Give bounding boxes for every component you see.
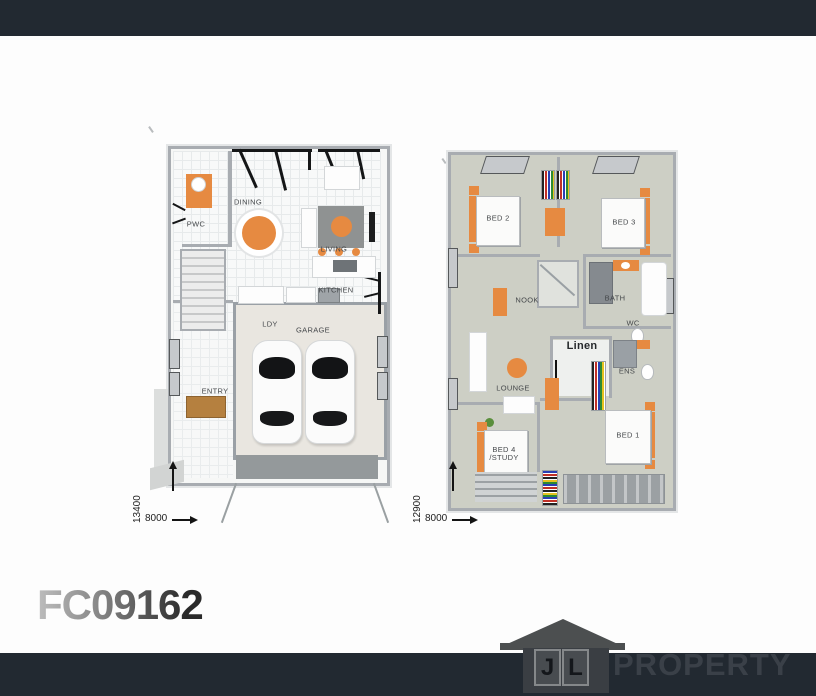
wall xyxy=(537,402,540,472)
room-label-bed3: BED 3 xyxy=(612,218,635,227)
wall xyxy=(182,244,232,247)
window xyxy=(377,336,388,368)
room-label-kitchen: KITCHEN xyxy=(318,286,353,295)
room-label-wc: WC xyxy=(626,319,639,328)
car xyxy=(305,340,355,444)
nightstand xyxy=(640,188,650,197)
cooktop xyxy=(333,260,357,272)
room-label-entry: ENTRY xyxy=(202,387,229,396)
width-dimension-first: 8000 xyxy=(425,513,447,524)
window xyxy=(448,248,458,288)
room-label-garage: GARAGE xyxy=(296,326,330,335)
roof-deck xyxy=(563,474,665,504)
bed2-headboard xyxy=(469,196,476,242)
car-windshield xyxy=(259,357,295,379)
wall xyxy=(550,336,612,339)
entry-bench xyxy=(186,396,226,418)
page: DINING PWC LIVING KITCHEN LDY GARAGE ENT… xyxy=(0,0,816,696)
laundry-bench xyxy=(238,286,284,304)
driveway-line xyxy=(373,483,389,523)
width-dimension-ground: 8000 xyxy=(145,513,167,524)
room-label-ldy: LDY xyxy=(262,320,278,329)
driveway xyxy=(236,455,378,479)
wall xyxy=(583,254,671,257)
car-rear-window xyxy=(260,411,294,426)
hall-desk xyxy=(545,208,565,236)
wardrobe-clothes xyxy=(556,170,570,200)
top-banner xyxy=(0,0,816,36)
dining-table xyxy=(242,216,276,250)
ground-floor-plan: DINING PWC LIVING KITCHEN LDY GARAGE ENT… xyxy=(166,144,394,524)
depth-arrow-ground xyxy=(169,461,177,469)
company-logo: J L PROPERTY xyxy=(500,617,816,696)
window xyxy=(448,378,458,410)
logo-letter-j: J xyxy=(534,649,561,686)
wall xyxy=(450,254,540,257)
side-path xyxy=(154,389,168,469)
car-windshield xyxy=(312,357,348,379)
room-label-living: LIVING xyxy=(321,245,347,254)
depth-dimension-first: 12900 xyxy=(412,483,423,523)
wardrobe-clothes xyxy=(541,170,555,200)
wardrobe-clothes xyxy=(542,470,558,506)
width-arrow-line-first xyxy=(452,519,470,521)
armchair xyxy=(331,216,352,237)
car xyxy=(252,340,302,444)
wall xyxy=(583,254,586,326)
room-label-bed1: BED 1 xyxy=(616,431,639,440)
stairs-down xyxy=(475,472,537,502)
room-label-pwc: PWC xyxy=(187,220,205,229)
nightstand xyxy=(469,186,479,195)
wall xyxy=(609,336,612,398)
lounge-sofa xyxy=(469,332,487,392)
dresser xyxy=(545,378,559,410)
depth-arrow-first xyxy=(449,461,457,469)
nook-desk xyxy=(493,288,507,316)
depth-arrow-line-first xyxy=(452,469,454,491)
window xyxy=(377,372,388,400)
room-label-bed2: BED 2 xyxy=(486,214,509,223)
room-label-lounge: LOUNGE xyxy=(496,384,529,393)
width-arrow-ground xyxy=(190,516,198,524)
linen-clothes xyxy=(591,361,606,411)
house-roof-icon xyxy=(505,619,620,645)
first-floor-plan: BED 2 BED 3 NOOK BATH WC Linen ENS LOUNG… xyxy=(445,150,677,528)
logo-wordmark: PROPERTY xyxy=(613,647,792,683)
lounge-table xyxy=(507,358,527,378)
stray-mark xyxy=(148,126,154,133)
window xyxy=(169,372,180,396)
room-label-nook: NOOK xyxy=(515,296,538,305)
width-arrow-first xyxy=(470,516,478,524)
lounge-ottoman xyxy=(503,396,535,414)
depth-arrow-line-ground xyxy=(172,469,174,491)
car-rear-window xyxy=(313,411,347,426)
logo-letter-l: L xyxy=(562,649,589,686)
sofa xyxy=(301,208,317,248)
bed4-label-line2: /STUDY xyxy=(489,453,518,462)
stool xyxy=(352,248,360,256)
wall xyxy=(228,151,232,246)
roof-window xyxy=(592,156,640,174)
bed4-headboard xyxy=(477,432,484,474)
ens-toilet xyxy=(641,364,654,380)
room-label-ens: ENS xyxy=(619,367,635,376)
room-label-linen: Linen xyxy=(567,340,598,352)
console xyxy=(324,166,360,190)
bath-basin xyxy=(621,262,630,269)
depth-dimension-ground: 13400 xyxy=(132,483,143,523)
laundry-tub xyxy=(286,287,316,303)
bathtub xyxy=(641,262,667,316)
stacker-door xyxy=(232,149,312,152)
room-label-dining: DINING xyxy=(234,198,262,207)
ens-shower xyxy=(613,340,637,368)
tv xyxy=(369,212,375,242)
width-arrow-line-ground xyxy=(172,519,190,521)
stair-rail xyxy=(540,264,576,296)
room-label-bed4-study: BED 4 /STUDY xyxy=(489,446,518,462)
room-label-bath: BATH xyxy=(605,294,626,303)
stairwell xyxy=(537,260,579,308)
pwc-basin xyxy=(191,177,206,192)
roof-window xyxy=(480,156,530,174)
plan-code: FC09162 xyxy=(37,581,203,629)
stacker-door xyxy=(308,150,311,170)
window xyxy=(169,339,180,369)
staircase xyxy=(180,249,226,331)
driveway-line xyxy=(221,483,237,523)
ens-vanity xyxy=(637,340,650,349)
